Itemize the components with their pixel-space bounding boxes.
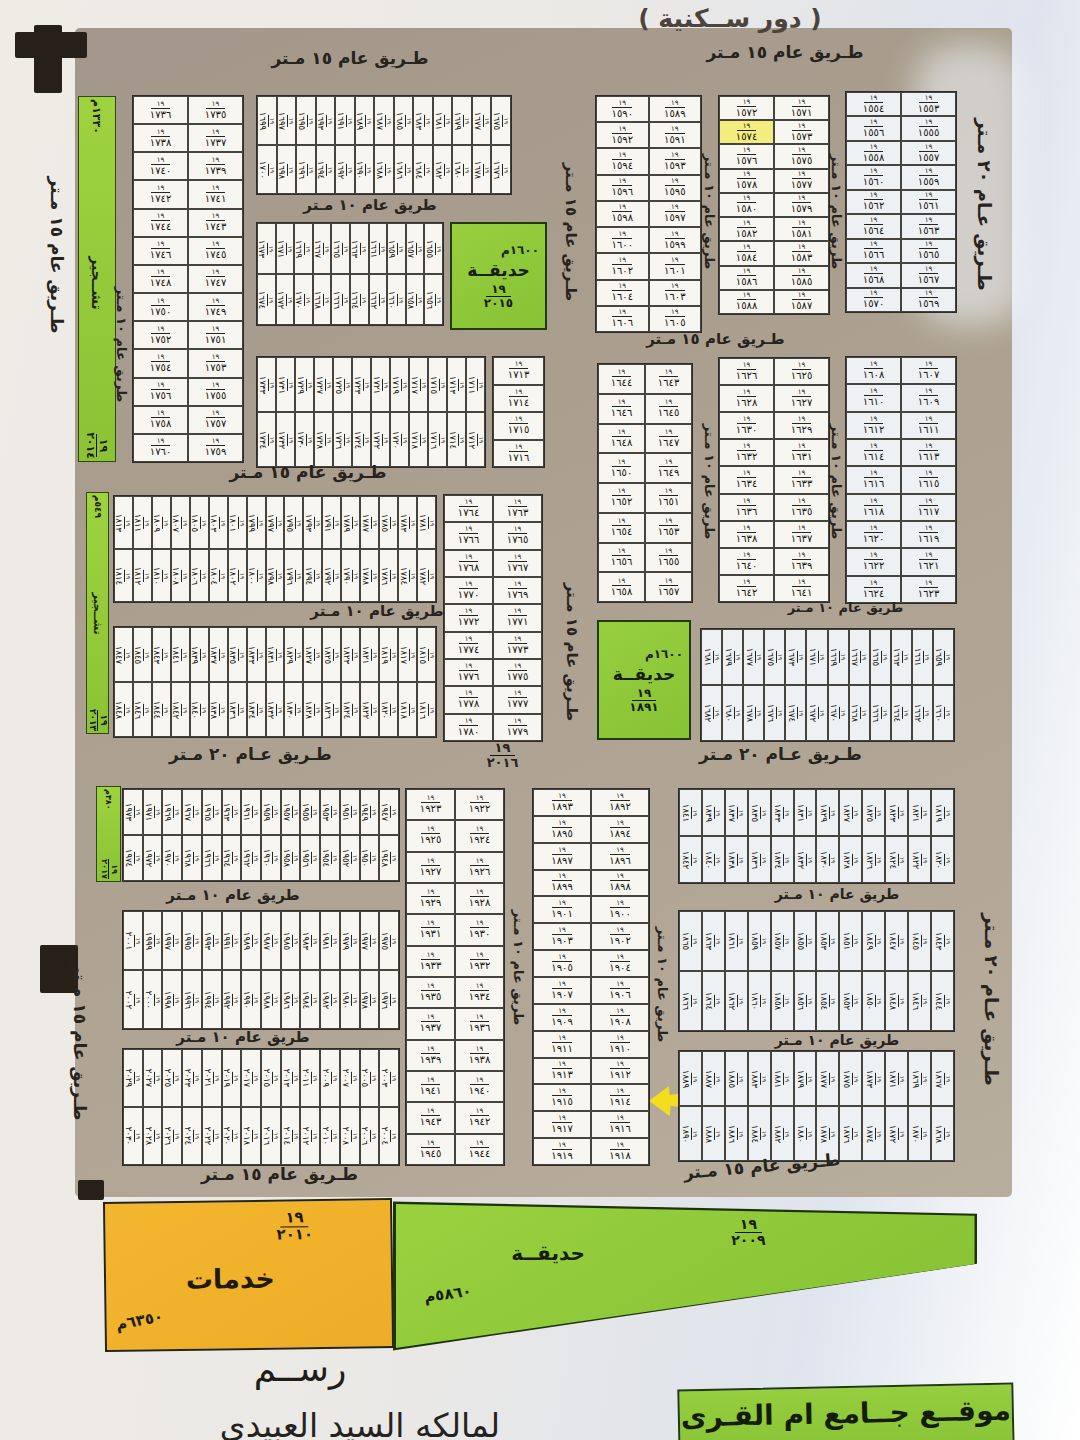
plot-cell: ١٩٢٠٠٧: [340, 1049, 360, 1107]
plot-cell: ١٩١٧٩٢: [322, 549, 341, 602]
road-parcel-number: ١٩٢٠١٦: [455, 740, 550, 769]
plot-block-K: ١٩١٦٤٣١٩١٦٤٤١٩١٦٤٥١٩١٦٤٦١٩١٦٤٧١٩١٦٤٨١٩١٦…: [597, 363, 693, 603]
plot-cell: ١٩١٩٧٠: [162, 835, 182, 881]
plot-cell: ١٩١٦٧٣: [257, 223, 276, 274]
plot-cell: ١٩١٨٠٧: [171, 496, 190, 549]
plot-cell: ١٩١٧٣٩: [188, 152, 243, 180]
plot-cell: ١٩١٥٦٥: [901, 239, 956, 263]
plot-cell: ١٩١٦٣١: [774, 439, 829, 466]
plot-cell: ١٩١٧١٣: [493, 357, 544, 385]
plot-cell: ١٩١٩٣٧: [406, 1008, 455, 1039]
plot-cell: ١٩١٥٨٩: [649, 96, 702, 122]
road-label-r10: طريق عام ١٠ مـتر: [128, 886, 338, 904]
plot-cell: ١٩١٩٥٢: [340, 835, 360, 881]
plot-block-RB1: ١٩١٨٤١١٩١٨٤٢١٩١٨٣٩١٩١٨٤٠١٩١٨٣٧١٩١٨٣٨١٩١٨…: [678, 788, 955, 884]
plot-cell: ١٩١٨٠٢: [228, 549, 247, 602]
plot-cell: ١٩١٦٠٣: [649, 280, 702, 306]
plot-cell: ١٩١٧٧٠: [444, 577, 493, 604]
plot-cell: ١٩١٥٦٤: [846, 214, 901, 238]
plot-cell: ١٩١٧١٣: [447, 357, 466, 412]
plot-cell: ١٩١٦٨٦: [394, 145, 414, 194]
road-label-r10: طريق عام ١٠ مـتر: [245, 196, 495, 214]
plot-cell: ١٩١٨٩٨: [591, 870, 649, 897]
plot-cell: ١٩١٦٨٣: [413, 96, 433, 145]
plot-cell: ١٩١٦٧٥: [491, 96, 511, 145]
plot-cell: ١٩١٦٥٩: [933, 629, 954, 685]
road-label-r10: طريق عام ١٠ مـتر: [114, 234, 129, 454]
plot-cell: ١٩١٦٤٩: [645, 453, 692, 483]
plot-cell: ١٩١٨٢٩: [816, 789, 839, 836]
plot-cell: ١٩١٦٦٣: [350, 223, 369, 274]
plot-cell: ١٩١٦٧٩: [452, 96, 472, 145]
plot-cell: ١٩١٨٣١: [266, 627, 285, 682]
plot-cell: ١٩١٨٣٢: [266, 682, 285, 737]
plot-cell: ١٩١٧٣٤: [257, 412, 276, 467]
plot-cell: ١٩١٨٩٢: [591, 789, 649, 816]
plot-cell: ١٩١٦٦٤: [350, 274, 369, 325]
plot-cell: ١٩١٦٤٠: [719, 548, 774, 575]
plot-cell: ١٩١٧٣١: [276, 357, 295, 412]
plot-cell: ١٩١٦٣٦: [719, 494, 774, 521]
plot-cell: ١٩١٧٤٩: [188, 293, 243, 321]
plot-cell: ١٩١٩٥٣: [320, 789, 340, 835]
plot-cell: ١٩١٦٩٣: [316, 96, 336, 145]
strip-parcel-number: ١٩٢٠١٤: [85, 432, 109, 459]
plot-cell: ١٩١٨٣٦: [228, 682, 247, 737]
plot-cell: ١٩١٩٠٩: [533, 1004, 591, 1031]
plot-cell: ١٩١٦٠٩: [901, 384, 956, 411]
plot-cell: ١٩١٦٥٧: [645, 572, 692, 602]
plot-cell: ١٩١٦٥٦: [424, 274, 443, 325]
plot-cell: ١٩١٦٤٥: [645, 394, 692, 424]
services-block: ١٩٢٠١٠ خدمات ٦٣٥٠م: [103, 1198, 394, 1352]
road-label-r20: طـريق عـام ٢٠ مـتر: [648, 744, 913, 764]
plot-cell: ١٩١٧٤٧: [188, 265, 243, 293]
plot-cell: ١٩١٧٢٧: [314, 357, 333, 412]
garden-label: حديقــة: [613, 664, 676, 684]
plot-cell: ١٩٢٠٢٩: [123, 1049, 143, 1107]
plot-cell: ١٩١٧٢٠: [390, 412, 409, 467]
plot-cell: ١٩١٩٤٥: [406, 1134, 455, 1165]
plot-cell: ١٩٢٠٢٢: [202, 1107, 222, 1165]
plot-cell: ١٩١٥٧٧: [774, 169, 829, 193]
plot-block-F: ١٩١٥٧١١٩١٥٧٢١٩١٥٧٣١٩١٥٧٤١٩١٥٧٥١٩١٥٧٦١٩١٥…: [718, 95, 830, 315]
plot-cell: ١٩١٩٦٢: [241, 835, 261, 881]
plot-cell: ١٩١٨٣٤: [247, 682, 266, 737]
plot-cell: ١٩١٩٥٧: [281, 789, 301, 835]
services-parcel-number: ١٩٢٠١٠: [276, 1210, 313, 1243]
plot-cell: ١٩١٨٢٥: [862, 789, 885, 836]
plot-cell: ١٩١٨٥٨: [771, 971, 794, 1031]
plot-cell: ١٩١٥٨٦: [719, 266, 774, 290]
plot-cell: ١٩١٧٤٣: [188, 209, 243, 237]
drawing-caption: رســم: [185, 1348, 415, 1389]
plot-cell: ١٩١٥٩٦: [596, 175, 649, 201]
plot-cell: ١٩١٥٧٨: [719, 169, 774, 193]
plot-cell: ١٩١٦٣٢: [719, 439, 774, 466]
plot-cell: ١٩١٨٤٧: [114, 627, 133, 682]
road-label-r15: طـريق عام ١٥ مـتر: [168, 462, 448, 482]
plot-cell: ١٩١٦٠٧: [901, 357, 956, 384]
plot-cell: ١٩١٧٧٦: [444, 659, 493, 686]
plot-cell: ١٩١٥٥٣: [901, 92, 956, 116]
plot-cell: ١٩١٧٨٠: [444, 714, 493, 741]
plot-cell: ١٩٢٠٢١: [202, 1049, 222, 1107]
plot-cell: ١٩١٩٣٨: [455, 1040, 504, 1071]
plot-cell: ١٩١٨٤٨: [885, 971, 908, 1031]
strip-parcel-number: ١٩٢٠١٣: [88, 709, 108, 731]
plot-cell: ١٩١٧٤٥: [188, 237, 243, 265]
plot-cell: ١٩١٩٧٦: [379, 970, 399, 1029]
plot-block-RM: ١٩١٦٨١١٩١٦٨٢١٩١٦٧٩١٩١٦٨٠١٩١٦٧٧١٩١٦٧٨١٩١٦…: [700, 628, 955, 742]
plot-cell: ١٩١٧٧٩: [493, 714, 542, 741]
plot-cell: ١٩١٧٨٤: [398, 549, 417, 602]
plot-cell: ١٩١٧٩٥: [284, 496, 303, 549]
plot-cell: ١٩١٩٩٥: [182, 911, 202, 970]
plot-cell: ١٩١٨٩٧: [533, 843, 591, 870]
plot-cell: ١٩١٨٥٠: [862, 971, 885, 1031]
plot-cell: ١٩٢٠٠٣: [379, 1049, 399, 1107]
tree-strip-2013: ١٩٢٠١٣ تشــجير ٥٤٩م: [86, 492, 109, 734]
plot-cell: ١٩٢٠١٢: [300, 1107, 320, 1165]
plot-cell: ١٩١٩٩٧: [162, 911, 182, 970]
plot-cell: ١٩٢٠٠٩: [320, 1049, 340, 1107]
plot-cell: ١٩١٧٦٤: [444, 495, 493, 522]
road-label-r10: طريق عام ١٠ مـتر: [829, 399, 844, 564]
strip-area: ١٣٣٠م: [91, 99, 104, 134]
plot-cell: ١٩٢٠١٦: [261, 1107, 281, 1165]
plot-cell: ١٩١٩٩٦: [182, 970, 202, 1029]
plot-cell: ١٩٢٠١٩: [222, 1049, 242, 1107]
plot-cell: ١٩١٥٨٠: [719, 193, 774, 217]
plot-cell: ١٩١٦٣٥: [774, 494, 829, 521]
plot-cell: ١٩١٦٦١: [369, 223, 388, 274]
plot-cell: ١٩١٧٩٠: [341, 549, 360, 602]
plot-cell: ١٩١٥٨٧: [774, 290, 829, 314]
plot-cell: ١٩١٨٦٨: [931, 1106, 954, 1161]
plot-cell: ١٩١٨٣٠: [284, 682, 303, 737]
plot-cell: ١٩١٧٤١: [188, 180, 243, 208]
plot-cell: ١٩١٩١٠: [591, 1031, 649, 1058]
plot-cell: ١٩١٦١١: [901, 412, 956, 439]
plot-cell: ١٩١٧١٢: [466, 412, 485, 467]
plot-cell: ١٩١٧٥٨: [133, 406, 188, 434]
plot-cell: ١٩١٩١٨: [591, 1138, 649, 1165]
plot-cell: ١٩١٨٤٦: [133, 682, 152, 737]
plot-cell: ١٩١٦٣٤: [719, 466, 774, 493]
plot-cell: ١٩١٩٨٢: [320, 970, 340, 1029]
plot-cell: ١٩١٦٤٢: [719, 575, 774, 602]
plot-cell: ١٩١٥٧٩: [774, 193, 829, 217]
plot-cell: ١٩١٥٦٦: [846, 239, 901, 263]
plot-cell: ١٩١٦٣٧: [774, 521, 829, 548]
plot-cell: ١٩١٨٢٤: [885, 836, 908, 883]
plot-cell: ١٩١٩٣٥: [406, 977, 455, 1008]
plot-cell: ١٩١٨٢٨: [303, 682, 322, 737]
plot-cell: ١٩١٦٨٠: [452, 145, 472, 194]
plot-cell: ١٩١٨٥٩: [748, 911, 771, 971]
plot-cell: ١٩١٥٩١: [649, 122, 702, 148]
garden-triangle-outline: حديقــة ١٩٢٠٠٩ ٥٨٦٠م: [393, 1200, 977, 1352]
plot-cell: ١٩٢٠٢٧: [143, 1049, 163, 1107]
plot-cell: ١٩١٩٠٥: [533, 950, 591, 977]
plot-cell: ١٩١٨٣١: [794, 789, 817, 836]
plot-cell: ١٩١٧١٥: [493, 412, 544, 440]
plot-cell: ١٩١٦٥٢: [598, 483, 645, 513]
plot-cell: ١٩١٩٣٤: [455, 977, 504, 1008]
plot-cell: ١٩١٨٤٣: [152, 627, 171, 682]
plot-cell: ١٩١٧٦٩: [493, 577, 542, 604]
plot-cell: ١٩١٩٦٩: [162, 789, 182, 835]
plot-cell: ١٩١٦٧٧: [743, 629, 764, 685]
plot-cell: ١٩١٩١٣: [533, 1058, 591, 1085]
plot-cell: ١٩٢٠٢٣: [182, 1049, 202, 1107]
plot-cell: ١٩١٥٩٣: [649, 148, 702, 174]
plot-cell: ١٩١٦٧٠: [294, 274, 313, 325]
plot-cell: ١٩١٨٧٧: [816, 1051, 839, 1106]
plot-cell: ١٩١٧٧٣: [493, 632, 542, 659]
plot-cell: ١٩١٩٦٦: [202, 835, 222, 881]
plot-block-H: ١٩١٧٣٣١٩١٧٣٤١٩١٧٣١١٩١٧٣٢١٩١٧٢٩١٩١٧٣٠١٩١٧…: [256, 356, 486, 468]
plot-cell: ١٩١٨٦٣: [702, 911, 725, 971]
road-label-r15: طـريق عام ١٥ مـتر: [628, 330, 803, 348]
plot-cell: ١٩١٨٤٨: [114, 682, 133, 737]
plot-cell: ١٩١٥٨٣: [774, 241, 829, 265]
plot-cell: ١٩١٧٩٤: [303, 549, 322, 602]
owner-caption: لمالكه السيد العبيدي: [120, 1406, 600, 1440]
plot-cell: ١٩١٨١٠: [152, 549, 171, 602]
plot-cell: ١٩١٦٩٤: [316, 145, 336, 194]
plot-cell: ١٩١٨١٨: [398, 682, 417, 737]
garden-block-2009: حديقــة ١٩٢٠٠٩ ٥٨٦٠م: [396, 1203, 975, 1350]
plot-cell: ١٩١٦٨٥: [394, 96, 414, 145]
road-label-r10: طريق عام ١٠ مـتر: [742, 886, 932, 902]
plot-cell: ١٩١٧٣٢: [276, 412, 295, 467]
plot-cell: ١٩١٥٩٨: [596, 201, 649, 227]
road-label-r15: طـريق عام ١٥ مـتر: [630, 42, 940, 62]
plot-cell: ١٩١٨٩٠: [679, 1106, 702, 1161]
garden-label: حديقــة: [511, 1241, 585, 1265]
plot-cell: ١٩١٩٨٣: [300, 911, 320, 970]
plot-cell: ١٩١٥٦٠: [846, 165, 901, 189]
plot-cell: ١٩١٩٠٧: [533, 977, 591, 1004]
plot-cell: ١٩١٧٦٨: [444, 550, 493, 577]
plot-cell: ١٩١٧٧٤: [444, 632, 493, 659]
plot-cell: ١٩١٨٢٦: [322, 682, 341, 737]
plot-cell: ١٩١٦٩٢: [335, 145, 355, 194]
plot-cell: ١٩١٨٧١: [885, 1051, 908, 1106]
plot-cell: ١٩١٧٩٦: [284, 549, 303, 602]
plot-cell: ١٩١٦٨٩: [355, 96, 375, 145]
plot-cell: ١٩٢٠١٣: [281, 1049, 301, 1107]
plot-cell: ١٩١٨٠٨: [171, 549, 190, 602]
road-label-r15: طـريق عام ١٥ مـتر: [69, 944, 89, 1139]
plot-cell: ١٩٢٠٢٨: [143, 1107, 163, 1165]
plot-cell: ١٩١٦٦٦: [331, 274, 350, 325]
plot-cell: ١٩١٦٢٩: [774, 412, 829, 439]
plot-cell: ١٩١٨٢٦: [862, 836, 885, 883]
plot-cell: ١٩١٩٤١: [406, 1071, 455, 1102]
plot-cell: ١٩١٦٦٦: [870, 685, 891, 741]
plot-cell: ١٩١٩٩٨: [162, 970, 182, 1029]
plot-cell: ١٩١٩٥٩: [261, 789, 281, 835]
plot-cell: ١٩١٦٦٨: [313, 274, 332, 325]
plot-cell: ١٩٢٠١٧: [241, 1049, 261, 1107]
plot-cell: ١٩١٨٢١: [360, 627, 379, 682]
plot-cell: ١٩١٩٥١: [340, 789, 360, 835]
plot-cell: ١٩١٨٢٨: [839, 836, 862, 883]
plot-block-Q: ١٩١٨٩٢١٩١٨٩٣١٩١٨٩٤١٩١٨٩٥١٩١٨٩٦١٩١٨٩٧١٩١٨…: [532, 788, 650, 1166]
plot-cell: ١٩١٦٠١: [649, 253, 702, 279]
plot-cell: ١٩١٧١٦: [428, 412, 447, 467]
plot-cell: ١٩١٨٩٩: [533, 870, 591, 897]
plot-cell: ١٩٢٠٢٥: [162, 1049, 182, 1107]
plot-cell: ١٩١٩٠٣: [533, 923, 591, 950]
plot-cell: ١٩١٥٨٢: [719, 217, 774, 241]
plot-cell: ١٩١٧٥٧: [188, 406, 243, 434]
plot-cell: ١٩١٩٦١: [241, 789, 261, 835]
plot-cell: ١٩١٧٨٦: [379, 549, 398, 602]
plot-cell: ١٩١٧٥٥: [188, 378, 243, 406]
plot-cell: ١٩١٨٣٢: [794, 836, 817, 883]
plot-cell: ١٩١٥٧١: [774, 96, 829, 120]
plot-cell: ١٩٢٠١٠: [320, 1107, 340, 1165]
plot-cell: ١٩١٩١٩: [533, 1138, 591, 1165]
tree-strip-2017: ١٩٢٠١٧ ٣٨٠م: [96, 786, 121, 882]
plot-cell: ١٩١٩٦٧: [182, 789, 202, 835]
garden-block-2015: ١٦٠٠م حديقــة ١٩٢٠١٥: [450, 222, 547, 330]
plot-cell: ١٩١٩٦٨: [182, 835, 202, 881]
plot-cell: ١٩١٧٢٦: [333, 412, 352, 467]
plot-cell: ١٩١٥٩٥: [649, 175, 702, 201]
plot-block-P: ١٩١٩٢٢١٩١٩٢٣١٩١٩٢٤١٩١٩٢٥١٩١٩٢٦١٩١٩٢٧١٩١٩…: [405, 788, 505, 1166]
plot-cell: ١٩١٧١٧: [409, 357, 428, 412]
plot-cell: ١٩١٧٩٩: [247, 496, 266, 549]
plot-cell: ١٩١٦٢٢: [846, 548, 901, 575]
plot-cell: ١٩١٩٥٠: [360, 835, 380, 881]
plot-cell: ١٩١٥٦١: [901, 190, 956, 214]
plot-cell: ١٩١٨٣٨: [725, 836, 748, 883]
plot-cell: ١٩١٨١٤: [114, 549, 133, 602]
plot-cell: ١٩١٦٦٩: [828, 629, 849, 685]
plot-cell: ١٩١٩٢٤: [455, 820, 504, 851]
plot-cell: ١٩٢٠٠٢: [123, 970, 143, 1029]
plot-cell: ١٩١٦٦٧: [849, 629, 870, 685]
plot-cell: ١٩١٦١٩: [901, 521, 956, 548]
plot-cell: ١٩١٦٧٦: [764, 685, 785, 741]
plot-cell: ١٩١٧٨٧: [360, 496, 379, 549]
plot-cell: ١٩١٦٢٤: [846, 576, 901, 603]
plot-cell: ١٩٢٠٠٠: [143, 970, 163, 1029]
plot-cell: ١٩١٦٠٠: [596, 227, 649, 253]
plot-cell: ١٩١٨٤٠: [190, 682, 209, 737]
plot-cell: ١٩١٩٢٥: [406, 820, 455, 851]
plot-cell: ١٩١٦٥٥: [424, 223, 443, 274]
plot-cell: ١٩١٨٠٩: [152, 496, 171, 549]
plot-cell: ١٩١٧٣٧: [188, 124, 243, 152]
plot-cell: ١٩١٩٣٦: [455, 1008, 504, 1039]
strip-area: ٥٤٩م: [93, 495, 103, 518]
plot-cell: ١٩١٧٠٠: [257, 145, 277, 194]
plot-cell: ١٩١٨٢٠: [931, 836, 954, 883]
plot-cell: ١٩١٥٨٨: [719, 290, 774, 314]
plot-cell: ١٩١٩١١: [533, 1031, 591, 1058]
plot-cell: ١٩١٩٨٨: [261, 970, 281, 1029]
plot-cell: ١٩١٥٩٧: [649, 201, 702, 227]
road-label-r10: طريق عام ١٠ مـتر: [742, 1032, 932, 1048]
garden-parcel-number: ١٩٢٠١٥: [484, 283, 513, 309]
plot-cell: ١٩١٩٣٣: [406, 946, 455, 977]
plot-cell: ١٩١٧٥٦: [133, 378, 188, 406]
plot-block-RB3: ١٩١٨٨٩١٩١٨٩٠١٩١٨٨٧١٩١٨٨٨١٩١٨٨٥١٩١٨٨٦١٩١٨…: [678, 1050, 955, 1162]
garden-block-1891: ١٦٠٠م حديقــة ١٩١٨٩١: [597, 620, 691, 740]
plot-cell: ١٩١٧٥١: [188, 321, 243, 349]
road-label-r10: طريق عام ١٠ مـتر: [252, 602, 502, 620]
plot-cell: ١٩١٦١٣: [901, 439, 956, 466]
plot-cell: ١٩١٥٥٧: [901, 141, 956, 165]
plot-cell: ١٩١٧٩٧: [266, 496, 285, 549]
plot-cell: ١٩١٧٤٤: [133, 209, 188, 237]
plot-cell: ١٩١٧٥٢: [133, 321, 188, 349]
plot-cell: ١٩١٩٠٨: [591, 1004, 649, 1031]
plot-cell: ١٩٢٠١٥: [261, 1049, 281, 1107]
plot-cell: ١٩١٨٣٥: [228, 627, 247, 682]
plot-cell: ١٩١٦٢٥: [774, 358, 829, 385]
plot-cell: ١٩١٦٣٣: [774, 466, 829, 493]
strip-label: تشــجير: [89, 256, 105, 310]
plot-cell: ١٩١٦٠٥: [649, 306, 702, 332]
plot-cell: ١٩١٦٩١: [335, 96, 355, 145]
plot-cell: ١٩١٩٩٣: [202, 911, 222, 970]
plot-cell: ١٩١٨٤٢: [171, 682, 190, 737]
plot-cell: ١٩١٦٢٦: [719, 358, 774, 385]
plot-cell: ١٩١٧٦٦: [444, 522, 493, 549]
plot-cell: ١٩١٦٥٠: [598, 453, 645, 483]
plot-cell: ١٩١٦٢٠: [846, 521, 901, 548]
plot-cell: ١٩١٧٢٨: [314, 412, 333, 467]
plot-cell: ١٩١٧٥٩: [188, 434, 243, 462]
plot-cell: ١٩١٦٤١: [774, 575, 829, 602]
plot-cell: ١٩١٨٤١: [679, 789, 702, 836]
plot-cell: ١٩١٦٨١: [701, 629, 722, 685]
plot-cell: ١٩١٥٩٠: [596, 96, 649, 122]
page-title: ( دور ســكنية ): [560, 4, 900, 33]
plot-cell: ١٩١٥٧٢: [719, 96, 774, 120]
plot-cell: ١٩١٧٢٢: [371, 412, 390, 467]
plot-cell: ١٩١٩٧٨: [360, 970, 380, 1029]
plot-cell: ١٩١٨٣٩: [702, 789, 725, 836]
plot-cell: ١٩١٦٩٨: [277, 145, 297, 194]
plot-cell: ١٩١٩١٢: [591, 1058, 649, 1085]
plot-cell: ١٩١٥٧٠: [846, 288, 901, 312]
plot-cell: ١٩١٦٧٦: [491, 145, 511, 194]
plot-block-MS1: ١٩١٨١٣١٩١٨١٤١٩١٨١١١٩١٨١٢١٩١٨٠٩١٩١٨١٠١٩١٨…: [113, 495, 437, 603]
plot-cell: ١٩١٩٢٣: [406, 789, 455, 820]
plot-cell: ١٩١٦٧٠: [828, 685, 849, 741]
plot-cell: ١٩١٦٧٧: [472, 96, 492, 145]
plot-cell: ١٩٢٠٢٠: [222, 1107, 242, 1165]
plot-cell: ١٩١٩١٥: [533, 1084, 591, 1111]
plot-cell: ١٩١٥٦٨: [846, 263, 901, 287]
plot-cell: ١٩١٨٦٧: [931, 1051, 954, 1106]
plot-cell: ١٩١٥٧٣: [774, 120, 829, 144]
plot-cell: ١٩١٦٢١: [901, 548, 956, 575]
plot-block-RB2: ١٩١٨٦٥١٩١٨٦٦١٩١٨٦٣١٩١٨٦٤١٩١٨٦١١٩١٨٦٢١٩١٨…: [678, 910, 955, 1032]
plot-cell: ١٩١٧١٨: [409, 412, 428, 467]
plot-cell: ١٩١٨١٢: [133, 549, 152, 602]
garden-parcel-number: ١٩٢٠٠٩: [731, 1217, 765, 1247]
plot-cell: ١٩١٩٥٨: [281, 835, 301, 881]
